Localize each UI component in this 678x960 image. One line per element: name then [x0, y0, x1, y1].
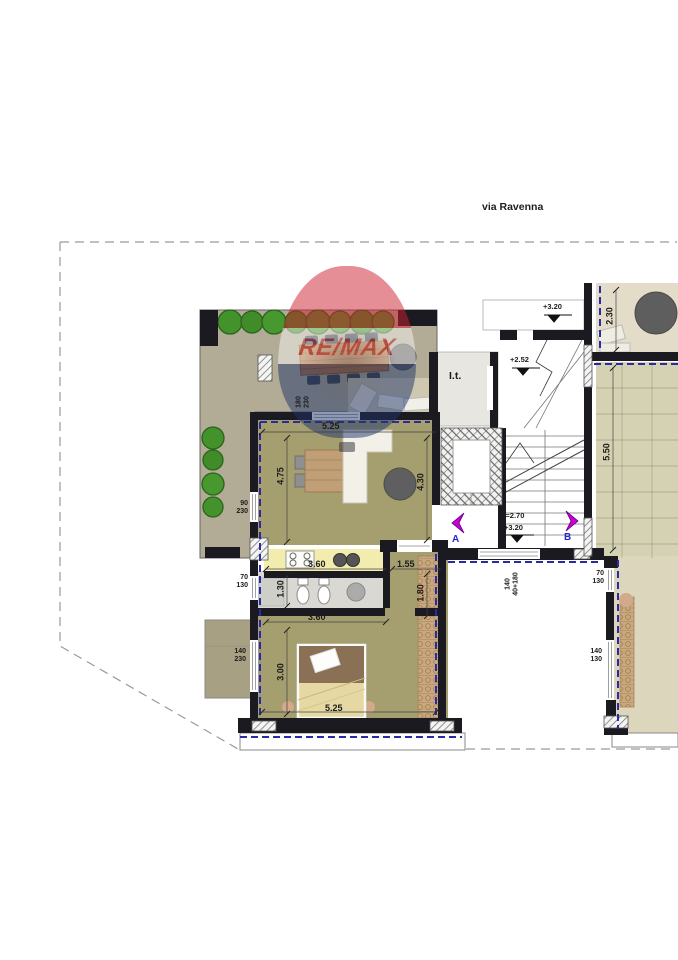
elevator-shaft: [441, 428, 502, 505]
level-stair-mid: +2.52: [510, 356, 529, 364]
dim-bath-depth: 1.30: [277, 580, 286, 598]
remax-watermark: RE/MAX: [278, 266, 416, 452]
street-name: via Ravenna: [482, 202, 543, 213]
balloon-basket-icon: [339, 442, 355, 452]
level-stair-top: +3.20: [543, 303, 562, 311]
technical-room-label: I.t.: [449, 371, 461, 382]
dim-balcony-depth: 2.30: [606, 307, 615, 325]
dim-bedroom-depth: 3.00: [277, 663, 286, 681]
dim-living-right: 4.30: [417, 473, 426, 491]
dim-living-depth: 4.75: [277, 467, 286, 485]
floor-plan-page: RE/MAX via Ravenna I.t. 5.25 4.75 4.30 3…: [0, 0, 678, 960]
window-label-right-lower: 140130: [576, 648, 602, 663]
level-hall-level: +3.20: [504, 524, 523, 532]
dim-kitchen-width: 3.60: [308, 560, 326, 569]
dim-bedroom-width: 5.25: [325, 704, 343, 713]
section-letter-a: A: [452, 535, 459, 545]
window-label-right-upper: 70130: [578, 570, 604, 585]
level-markers: [506, 315, 572, 542]
window-label-left-upper: 90230: [222, 500, 248, 515]
level-hall-height: H=2.70: [500, 512, 524, 520]
window-label-left-lower: 140230: [220, 648, 246, 663]
dim-bath-width: 3.60: [308, 613, 326, 622]
dim-hall-width: 1.55: [397, 560, 415, 569]
watermark-brand-text: RE/MAX: [297, 334, 397, 362]
dim-living-width: 5.25: [322, 422, 340, 431]
section-letter-b: B: [564, 533, 571, 543]
dim-terrace-length: 5.50: [603, 443, 612, 461]
window-label-living-top: 180230: [295, 396, 310, 408]
window-label-hall-bottom: 14040+180: [504, 572, 519, 596]
window-label-left-mid: 70130: [222, 574, 248, 589]
dim-hall-depth: 1.80: [417, 584, 426, 602]
floor-plan-drawing: [0, 0, 678, 960]
